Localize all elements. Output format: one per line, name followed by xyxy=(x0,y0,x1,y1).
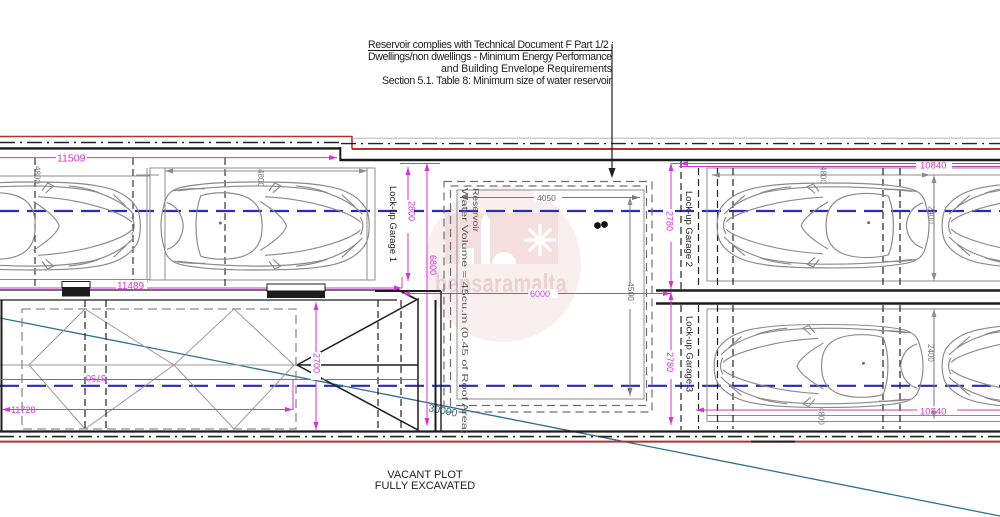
svg-text:11509: 11509 xyxy=(57,153,86,165)
svg-text:3750: 3750 xyxy=(86,373,106,383)
svg-text:and Building Envelope Requirem: and Building Envelope Requirements xyxy=(441,63,612,75)
svg-text:4500: 4500 xyxy=(626,282,636,301)
svg-text:Lock-up Garage 1: Lock-up Garage 1 xyxy=(387,186,398,262)
svg-text:2800: 2800 xyxy=(407,201,417,221)
svg-text:2780: 2780 xyxy=(665,211,675,231)
svg-text:Reservoir: Reservoir xyxy=(471,188,481,232)
svg-text:2400: 2400 xyxy=(926,344,935,362)
svg-text:Lock-up Garage 2: Lock-up Garage 2 xyxy=(683,191,694,267)
svg-text:6000: 6000 xyxy=(530,289,550,299)
svg-text:4050: 4050 xyxy=(537,193,556,203)
svg-text:4800: 4800 xyxy=(819,166,828,184)
svg-text:Lock-up Garage 3: Lock-up Garage 3 xyxy=(684,316,695,392)
svg-text:2780: 2780 xyxy=(665,352,675,372)
svg-text:Dwellings/non dwellings - Mini: Dwellings/non dwellings - Minimum Energy… xyxy=(368,51,612,63)
svg-text:FULLY EXCAVATED: FULLY EXCAVATED xyxy=(375,480,476,492)
svg-text:6800: 6800 xyxy=(428,255,438,275)
svg-text:10840: 10840 xyxy=(920,161,946,172)
svg-text:Section 5.1. Table 8: Minimum: Section 5.1. Table 8: Minimum size of wa… xyxy=(382,75,612,87)
svg-text:Water Volume = 45cu.m (0.45 of: Water Volume = 45cu.m (0.45 of Roof Area… xyxy=(460,188,470,434)
svg-text:Reservoir complies with Techni: Reservoir complies with Technical Docume… xyxy=(368,39,614,51)
svg-text:2700: 2700 xyxy=(312,353,322,373)
svg-text:4800: 4800 xyxy=(256,169,265,187)
svg-text:11728: 11728 xyxy=(11,405,35,415)
